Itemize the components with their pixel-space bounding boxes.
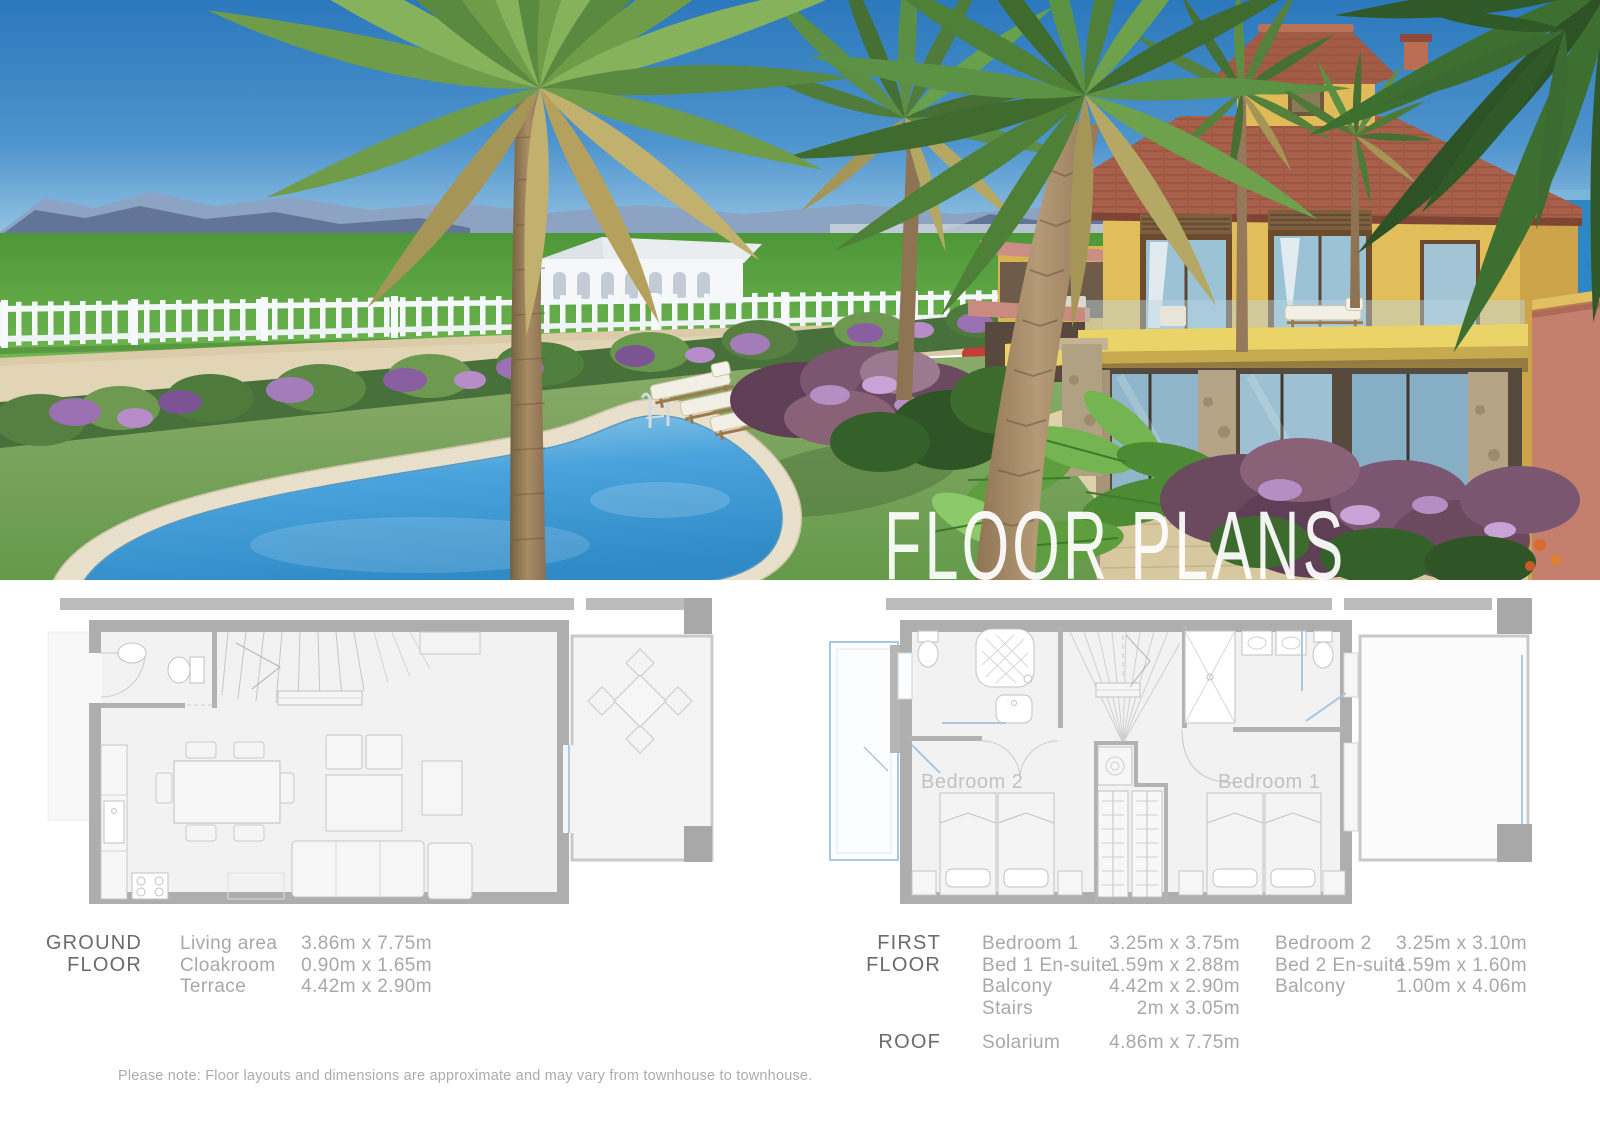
toilet-icon bbox=[1314, 631, 1332, 642]
floor-name-line: FIRST bbox=[800, 933, 941, 955]
toilet-icon bbox=[190, 657, 204, 683]
hero-photo: FLOOR PLANS bbox=[0, 0, 1600, 580]
bedroom-1-label: Bedroom 1 bbox=[1218, 771, 1320, 793]
coastal-wall bbox=[1532, 290, 1600, 580]
room-dims: 3.25m x 3.10m bbox=[1327, 933, 1527, 955]
room-dims: 1.59m x 2.88m bbox=[1040, 955, 1240, 977]
brochure-page: FLOOR PLANS bbox=[0, 0, 1600, 1131]
toilet-icon bbox=[918, 631, 938, 642]
dining-table bbox=[174, 761, 280, 823]
disclaimer-note: Please note: Floor layouts and dimension… bbox=[118, 1068, 812, 1084]
floor-name-line: FLOOR bbox=[0, 955, 142, 977]
roof-dimensions: 4.86m x 7.75m bbox=[1040, 1032, 1240, 1054]
ground-floor-dimensions: 3.86m x 7.75m 0.90m x 1.65m 4.42m x 2.90… bbox=[240, 933, 432, 998]
floor-plans-title: FLOOR PLANS bbox=[884, 490, 1347, 580]
sofa bbox=[292, 841, 424, 897]
room-dims: 0.90m x 1.65m bbox=[240, 955, 432, 977]
room-dims: 4.42m x 2.90m bbox=[1040, 976, 1240, 998]
first-plan-structure bbox=[830, 598, 1532, 898]
hero-illustration bbox=[0, 0, 1600, 580]
ground-floor-plan-drawing bbox=[40, 595, 740, 915]
first-floor-plan-drawing: Bedroom 2 Bedroom 1 bbox=[790, 595, 1540, 915]
entry-door-gap bbox=[89, 653, 102, 703]
floor-name-line: FLOOR bbox=[800, 955, 941, 977]
first-floor-dimensions-col1: 3.25m x 3.75m 1.59m x 2.88m 4.42m x 2.90… bbox=[1040, 933, 1240, 1019]
sink-icon bbox=[118, 643, 146, 663]
roof-heading: ROOF bbox=[800, 1032, 941, 1054]
floor-name-line: GROUND bbox=[0, 933, 142, 955]
ground-floor-heading: GROUND FLOOR bbox=[0, 933, 142, 976]
room-dims: 4.42m x 2.90m bbox=[240, 976, 432, 998]
room-dims: 1.59m x 1.60m bbox=[1327, 955, 1527, 977]
sideboard bbox=[420, 632, 480, 654]
first-floor-dimensions-col2: 3.25m x 3.10m 1.59m x 1.60m 1.00m x 4.06… bbox=[1327, 933, 1527, 998]
first-floor-heading: FIRST FLOOR bbox=[800, 933, 941, 976]
basin-icon bbox=[996, 695, 1032, 723]
room-dims: 2m x 3.05m bbox=[1040, 998, 1240, 1020]
basin-icon bbox=[1242, 631, 1272, 655]
room-dims: 1.00m x 4.06m bbox=[1327, 976, 1527, 998]
bedroom-2-label: Bedroom 2 bbox=[921, 771, 1023, 793]
room-dims: 3.86m x 7.75m bbox=[240, 933, 432, 955]
stove-icon bbox=[132, 873, 168, 899]
left-balcony bbox=[830, 642, 898, 860]
kitchen-sink-icon bbox=[104, 801, 124, 843]
room-dims: 3.25m x 3.75m bbox=[1040, 933, 1240, 955]
